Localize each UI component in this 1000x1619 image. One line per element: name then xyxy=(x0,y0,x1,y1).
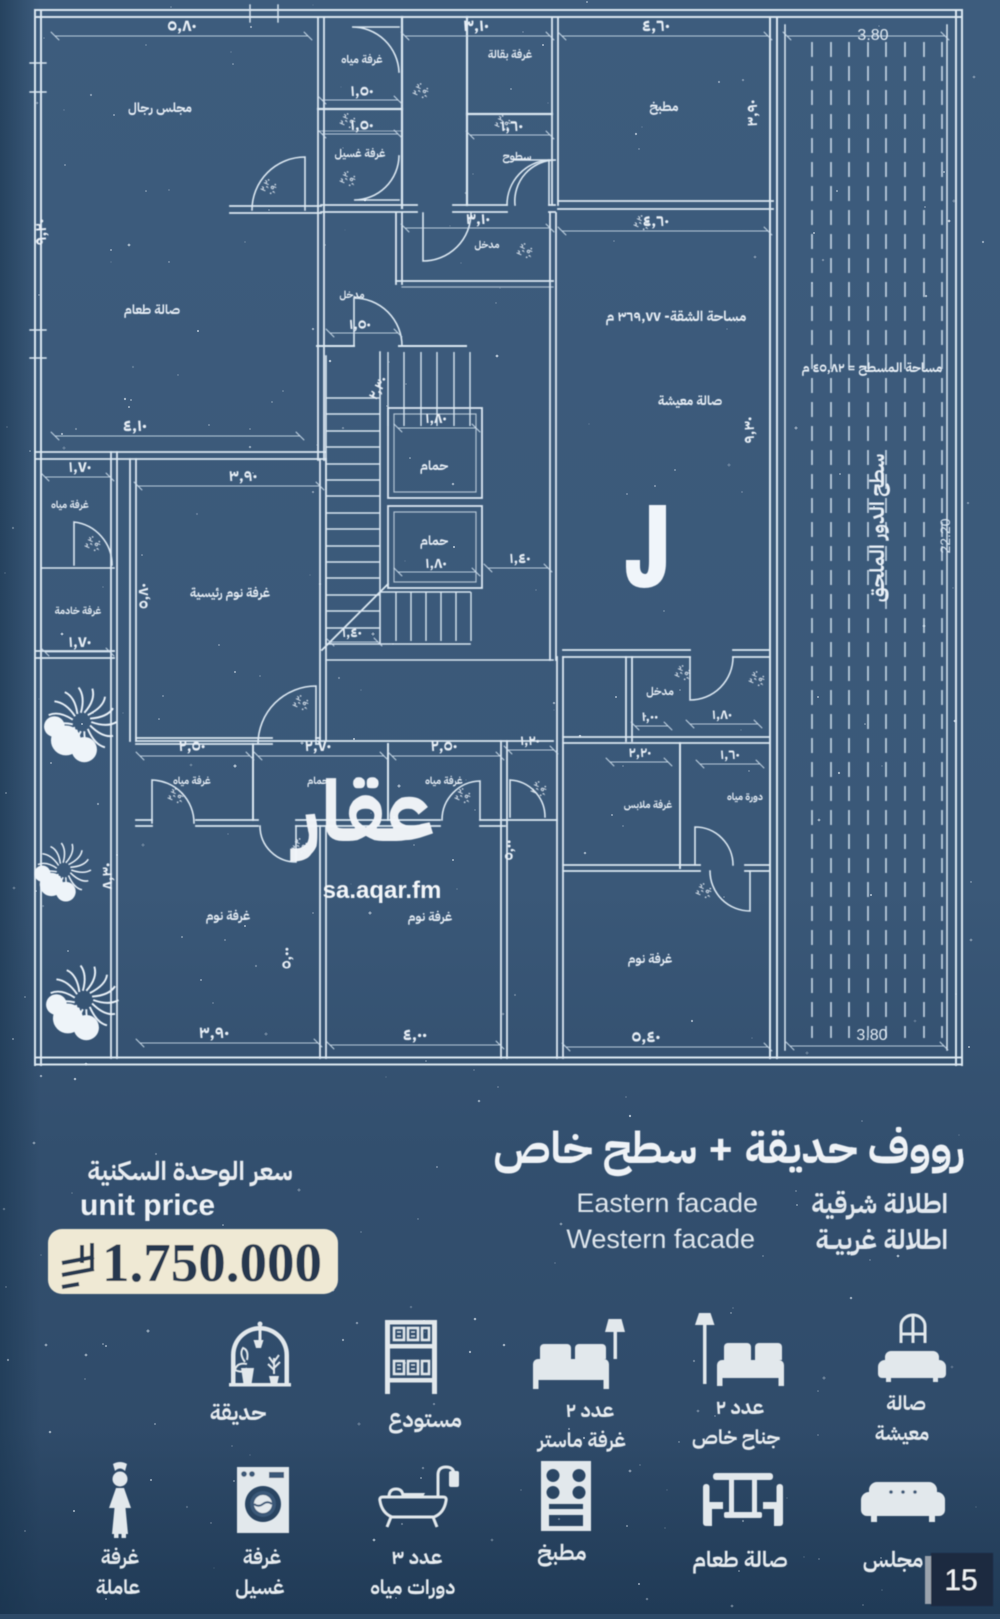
svg-text:sa.aqar.fm: sa.aqar.fm xyxy=(323,877,442,904)
svg-text:1.750.000: 1.750.000 xyxy=(102,1232,322,1293)
svg-text:Eastern facade: Eastern facade xyxy=(576,1188,758,1218)
svg-text:Western facade: Western facade xyxy=(566,1224,755,1254)
svg-text:22.20: 22.20 xyxy=(937,518,953,553)
svg-text:3.80: 3.80 xyxy=(857,27,888,44)
svg-text:3.80: 3.80 xyxy=(856,1027,887,1044)
svg-text:unit price: unit price xyxy=(80,1189,215,1222)
svg-text:15: 15 xyxy=(944,1564,977,1597)
